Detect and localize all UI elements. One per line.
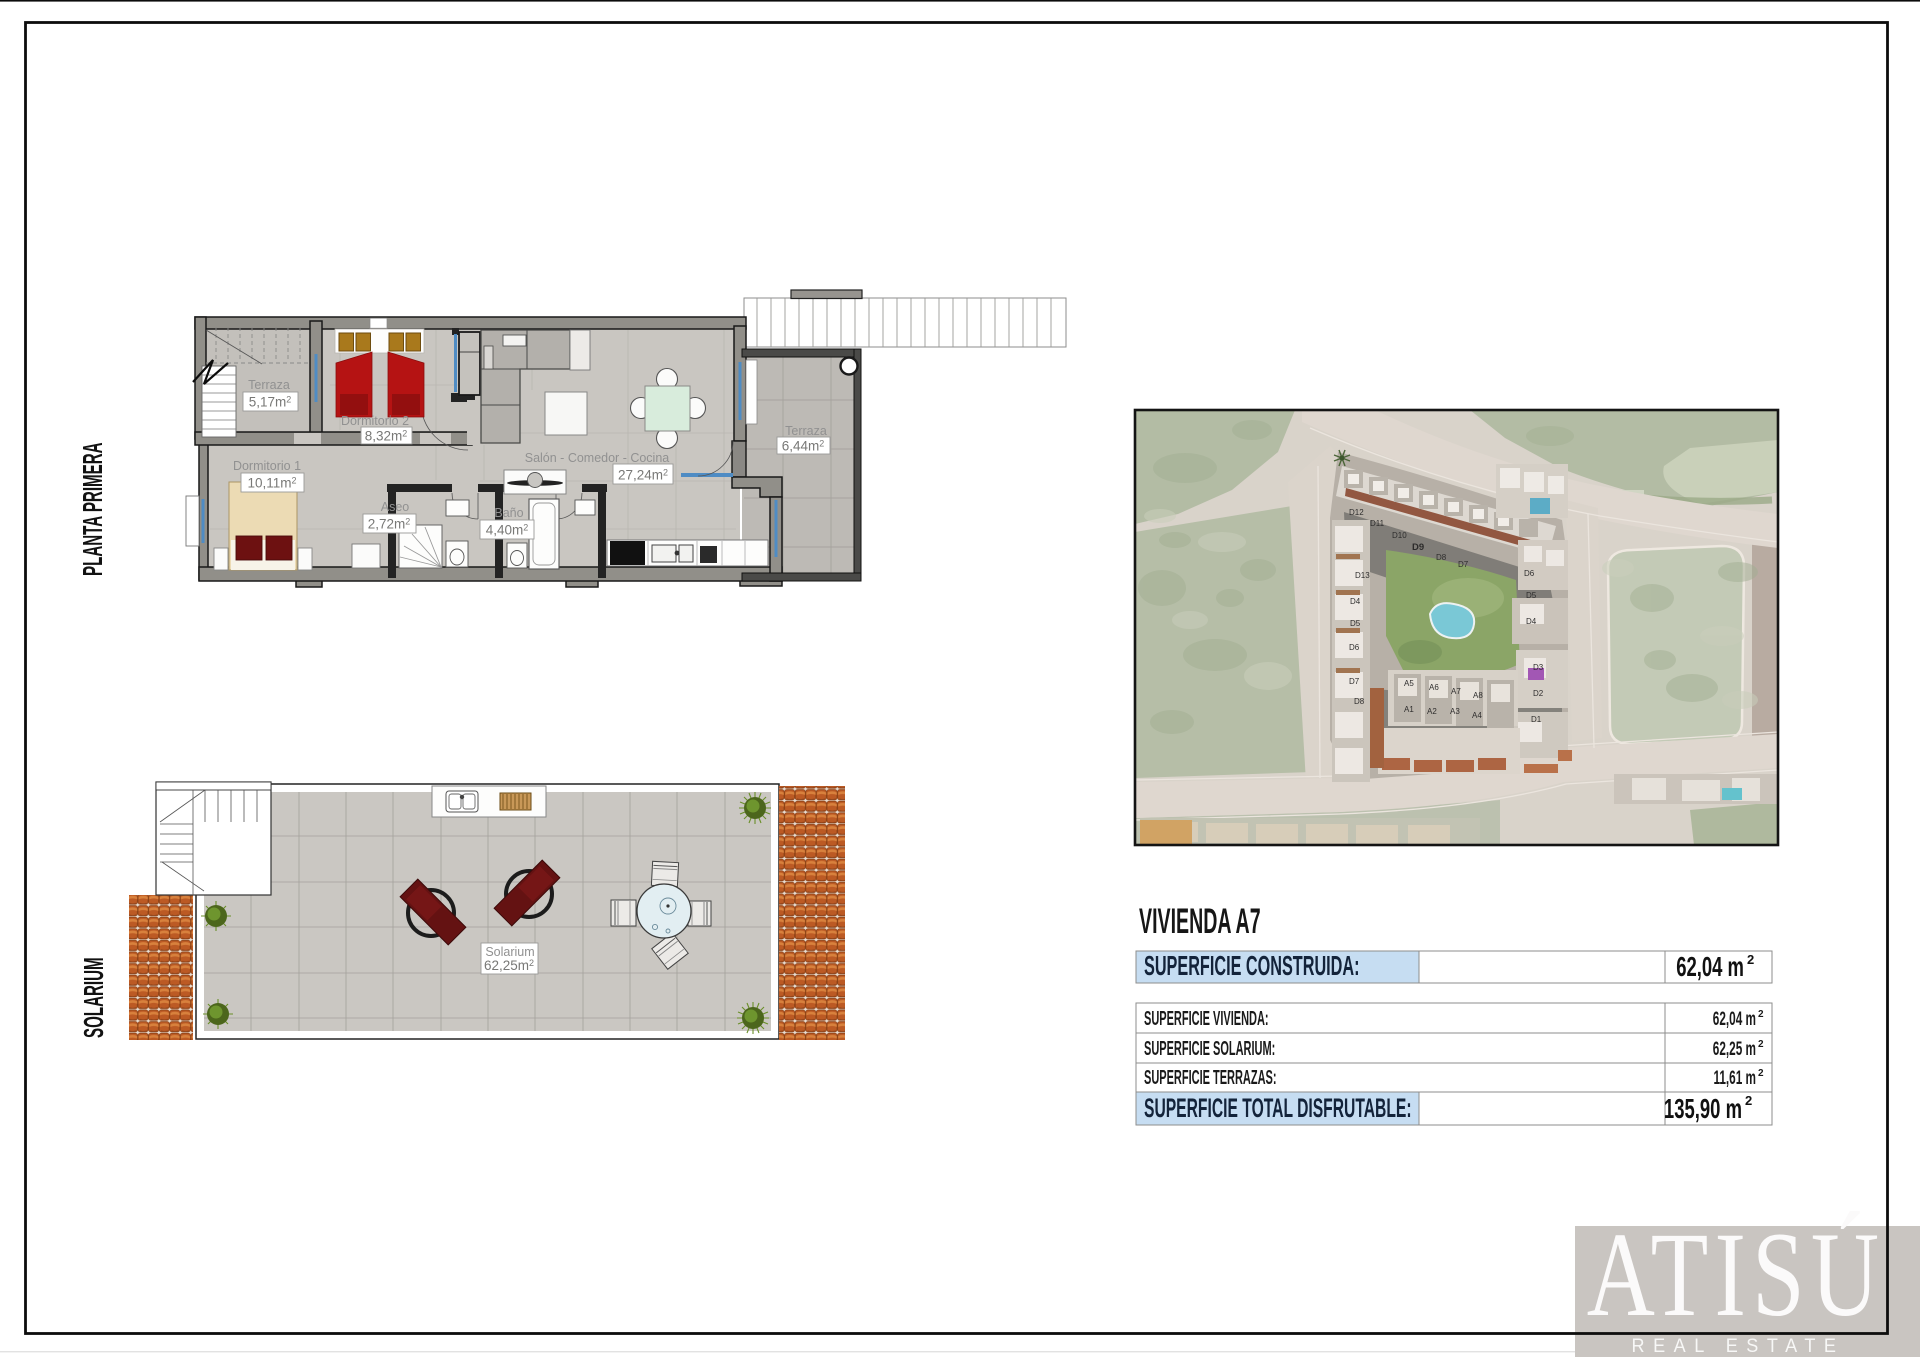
svg-text:2: 2 bbox=[1758, 1009, 1764, 1020]
svg-text:SOLARIUM: SOLARIUM bbox=[78, 957, 109, 1038]
svg-text:Terraza: Terraza bbox=[248, 378, 290, 392]
svg-text:SUPERFICIE VIVIENDA:: SUPERFICIE VIVIENDA: bbox=[1144, 1008, 1269, 1030]
svg-text:SUPERFICIE TOTAL DISFRUTABLE:: SUPERFICIE TOTAL DISFRUTABLE: bbox=[1144, 1093, 1412, 1124]
svg-text:62,04 m: 62,04 m bbox=[1676, 952, 1744, 983]
svg-text:REAL ESTATE: REAL ESTATE bbox=[1632, 1335, 1845, 1357]
svg-text:PLANTA PRIMERA: PLANTA PRIMERA bbox=[77, 442, 108, 576]
svg-text:135,90 m: 135,90 m bbox=[1664, 1094, 1742, 1125]
svg-text:5,17m2: 5,17m2 bbox=[249, 395, 292, 410]
svg-text:2: 2 bbox=[1758, 1039, 1764, 1050]
svg-text:SUPERFICIE SOLARIUM:: SUPERFICIE SOLARIUM: bbox=[1144, 1038, 1275, 1060]
svg-text:27,24m2: 27,24m2 bbox=[618, 468, 668, 483]
svg-text:8,32m2: 8,32m2 bbox=[365, 429, 408, 444]
svg-text:4,40m2: 4,40m2 bbox=[486, 523, 529, 538]
svg-text:62,04 m: 62,04 m bbox=[1713, 1009, 1756, 1029]
svg-text:10,11m2: 10,11m2 bbox=[247, 476, 296, 491]
svg-text:ATISÚ: ATISÚ bbox=[1587, 1208, 1886, 1342]
svg-text:Solarium: Solarium bbox=[485, 945, 534, 959]
svg-text:62,25m2: 62,25m2 bbox=[484, 958, 534, 973]
svg-text:Dormitorio 1: Dormitorio 1 bbox=[233, 459, 301, 473]
svg-text:62,25 m: 62,25 m bbox=[1713, 1039, 1756, 1059]
svg-text:2: 2 bbox=[1747, 952, 1754, 967]
svg-text:SUPERFICIE CONSTRUIDA:: SUPERFICIE CONSTRUIDA: bbox=[1144, 949, 1360, 981]
svg-text:2: 2 bbox=[1745, 1093, 1752, 1108]
svg-text:Aseo: Aseo bbox=[381, 500, 410, 514]
svg-text:Terraza: Terraza bbox=[785, 424, 827, 438]
svg-text:Salón - Comedor - Cocina: Salón - Comedor - Cocina bbox=[525, 451, 670, 465]
svg-text:VIVIENDA A7: VIVIENDA A7 bbox=[1139, 902, 1261, 941]
svg-text:2,72m2: 2,72m2 bbox=[368, 517, 411, 532]
svg-text:11,61 m: 11,61 m bbox=[1713, 1068, 1756, 1088]
svg-text:Baño: Baño bbox=[494, 506, 523, 520]
svg-text:SUPERFICIE TERRAZAS:: SUPERFICIE TERRAZAS: bbox=[1144, 1067, 1276, 1089]
svg-text:6,44m2: 6,44m2 bbox=[782, 439, 825, 454]
svg-text:Dormitorio 2: Dormitorio 2 bbox=[341, 414, 409, 428]
svg-text:2: 2 bbox=[1758, 1068, 1764, 1079]
